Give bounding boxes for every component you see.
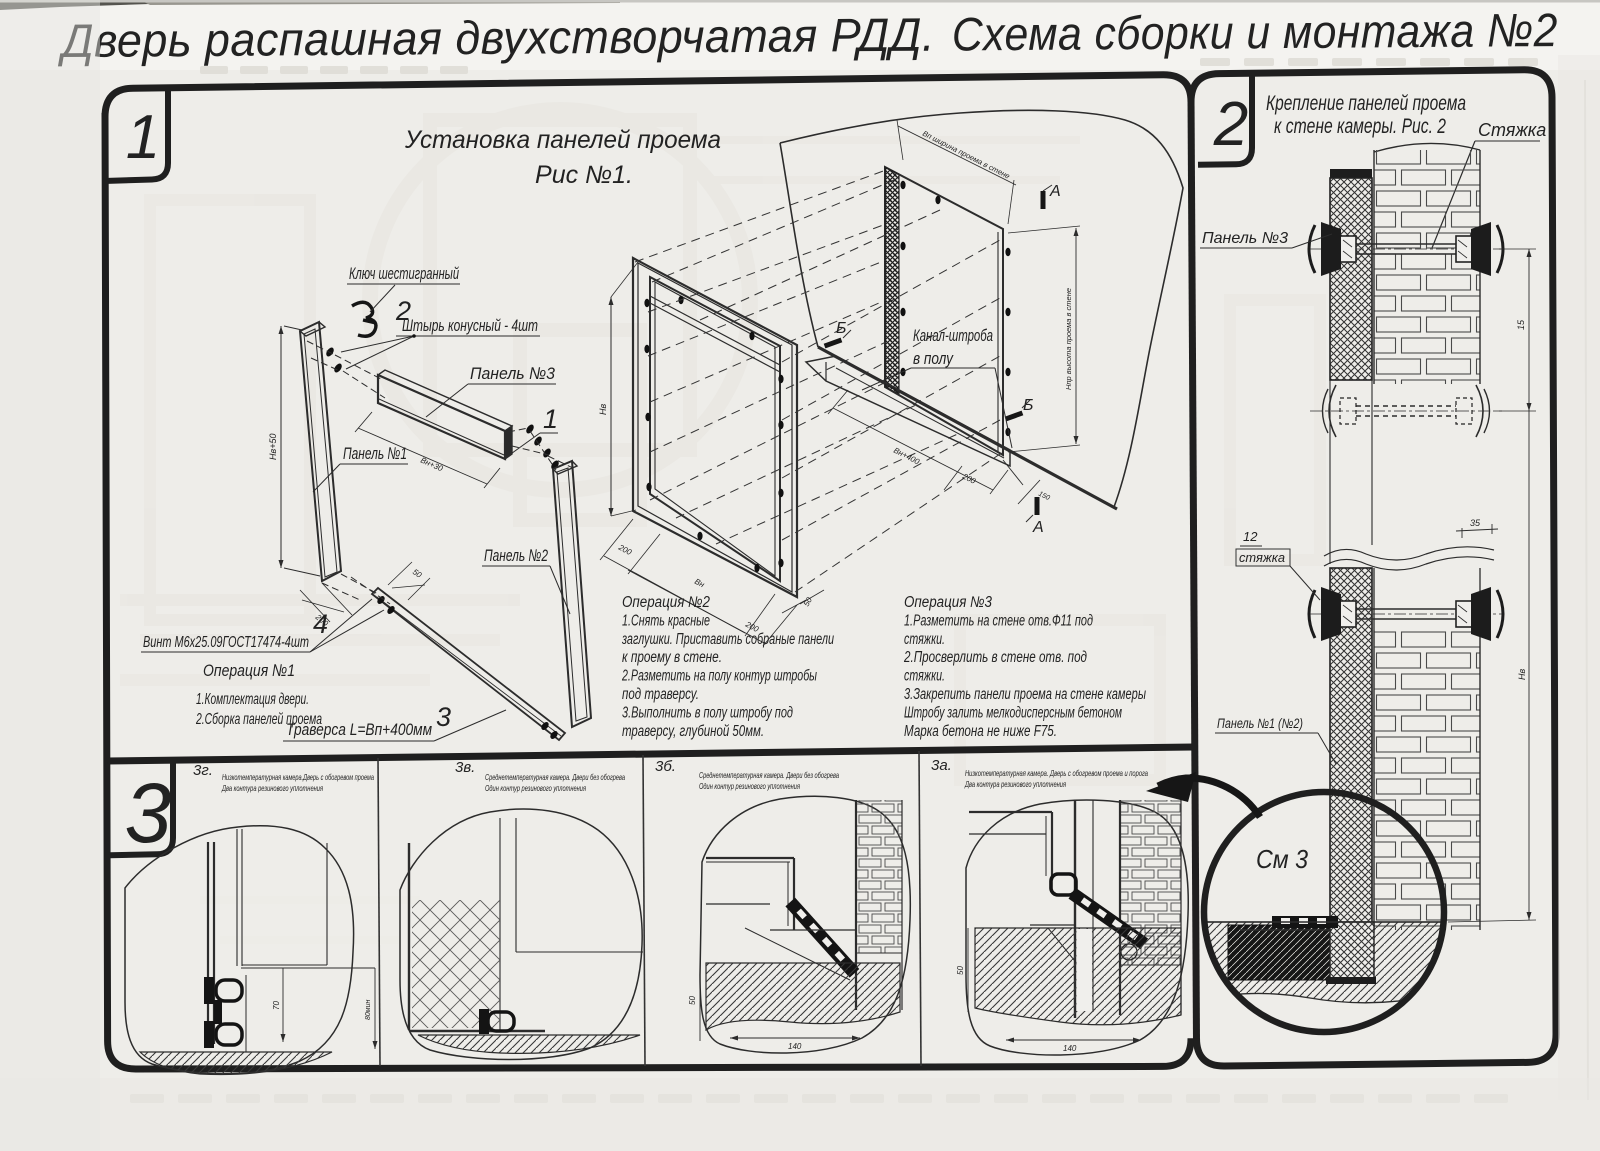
svg-text:50: 50 [688,996,697,1005]
svg-text:140: 140 [788,1042,802,1051]
svg-text:3в.: 3в. [455,759,475,776]
svg-text:3а.: 3а. [931,757,952,774]
svg-text:Два контура резинового уплотне: Два контура резинового уплотнения [964,779,1066,789]
svg-text:Схема сборки и монтажа №2: Схема сборки и монтажа №2 [952,3,1558,60]
svg-text:Нв: Нв [598,404,608,415]
svg-text:Винт М6х25.09ГОСТ17474-4шт: Винт М6х25.09ГОСТ17474-4шт [143,634,309,651]
svg-text:к проему в стене.: к проему в стене. [622,649,722,666]
svg-text:Операция №2: Операция №2 [622,594,710,611]
svg-text:1: 1 [126,103,160,172]
svg-text:3б.: 3б. [655,758,676,775]
svg-text:Панель №3: Панель №3 [1202,230,1288,247]
svg-text:1.Комплектация двери.: 1.Комплектация двери. [196,691,309,708]
svg-text:70: 70 [272,1001,281,1010]
svg-text:1.Разметить на стене отв.Ф11 п: 1.Разметить на стене отв.Ф11 под [904,612,1093,629]
svg-text:Один контур резинового уплотне: Один контур резинового уплотнения [485,783,586,793]
svg-text:2.Разметить на полу контур штр: 2.Разметить на полу контур штробы [621,668,817,685]
svg-text:заглушки. Приставить собраные: заглушки. Приставить собраные панели [621,631,834,648]
svg-text:Панель №1: Панель №1 [343,444,407,463]
svg-text:Два контура резинового уплотне: Два контура резинового уплотнения [221,783,323,793]
svg-text:Крепление панелей проема: Крепление панелей проема [1266,92,1466,115]
svg-text:3: 3 [436,702,451,732]
svg-text:1: 1 [543,404,558,434]
svg-text:Панель №1 (№2): Панель №1 (№2) [1217,716,1303,731]
svg-text:Установка панелей проема: Установка панелей проема [404,126,721,154]
svg-text:Низкотемпературная камера. Две: Низкотемпературная камера. Дверь с обогр… [965,768,1148,778]
svg-text:стяжки.: стяжки. [904,631,945,648]
svg-text:15: 15 [1516,319,1526,330]
svg-text:Штырь конусный - 4шт: Штырь конусный - 4шт [402,316,538,335]
svg-text:Штробу залить мелкодисперсным: Штробу залить мелкодисперсным бетоном [904,704,1122,721]
svg-text:Панель №2: Панель №2 [484,546,548,565]
svg-text:стяжка: стяжка [1239,550,1285,565]
svg-text:3.Закрепить панели проема на с: 3.Закрепить панели проема на стене камер… [904,686,1146,703]
svg-text:3г.: 3г. [193,762,213,779]
svg-text:80мин: 80мин [365,1000,372,1020]
svg-text:2: 2 [1213,90,1248,159]
svg-text:См 3: См 3 [1256,844,1308,874]
svg-text:Нпр высота проема в стене: Нпр высота проема в стене [1064,288,1073,390]
svg-text:Стяжка: Стяжка [1478,120,1546,140]
svg-text:Среднетемпературная камера. Дв: Среднетемпературная камера. Двери без об… [699,770,839,780]
svg-text:Марка бетона не ниже F75.: Марка бетона не ниже F75. [904,723,1057,740]
svg-text:в полу: в полу [913,349,954,368]
svg-text:2.Просверлить в стене отв. по: 2.Просверлить в стене отв. под [903,649,1087,666]
svg-text:стяжки.: стяжки. [904,668,945,685]
svg-text:140: 140 [1063,1044,1077,1053]
svg-text:12: 12 [1243,529,1258,544]
svg-text:траверсу, глубиной 50мм.: траверсу, глубиной 50мм. [622,723,764,740]
svg-text:Операция №3: Операция №3 [904,594,992,611]
svg-text:Канал-штроба: Канал-штроба [913,326,993,345]
svg-text:Ключ шестигранный: Ключ шестигранный [349,264,459,283]
svg-text:Б: Б [836,320,846,337]
svg-text:Нв+50: Нв+50 [268,434,278,460]
svg-text:Операция №1: Операция №1 [203,661,295,680]
svg-text:35: 35 [1470,518,1481,528]
svg-text:Траверса L=Вп+400мм: Траверса L=Вп+400мм [286,720,432,739]
svg-text:3.Выполнить в полу штробу под: 3.Выполнить в полу штробу под [622,704,793,721]
svg-text:1.Снять красные: 1.Снять красные [622,612,710,629]
svg-text:Низкотемпературная камера.Двер: Низкотемпературная камера.Дверь с обогре… [222,772,374,782]
svg-text:А: А [1032,519,1044,536]
svg-text:под траверсу.: под траверсу. [622,686,699,703]
svg-text:4: 4 [313,609,328,639]
svg-text:3: 3 [125,766,172,860]
svg-text:к стене камеры. Рис. 2: к стене камеры. Рис. 2 [1274,115,1446,138]
svg-text:Дверь распашная двухстворчатая: Дверь распашная двухстворчатая РДД. [57,8,935,67]
svg-text:50: 50 [956,966,965,975]
svg-text:Нв: Нв [1517,669,1527,680]
svg-text:Рис №1.: Рис №1. [535,161,633,189]
svg-text:Среднетемпературная камера. Дв: Среднетемпературная камера. Двери без об… [485,772,625,782]
svg-text:Панель №3: Панель №3 [470,364,556,383]
svg-text:Один контур резинового уплотне: Один контур резинового уплотнения [699,781,800,791]
